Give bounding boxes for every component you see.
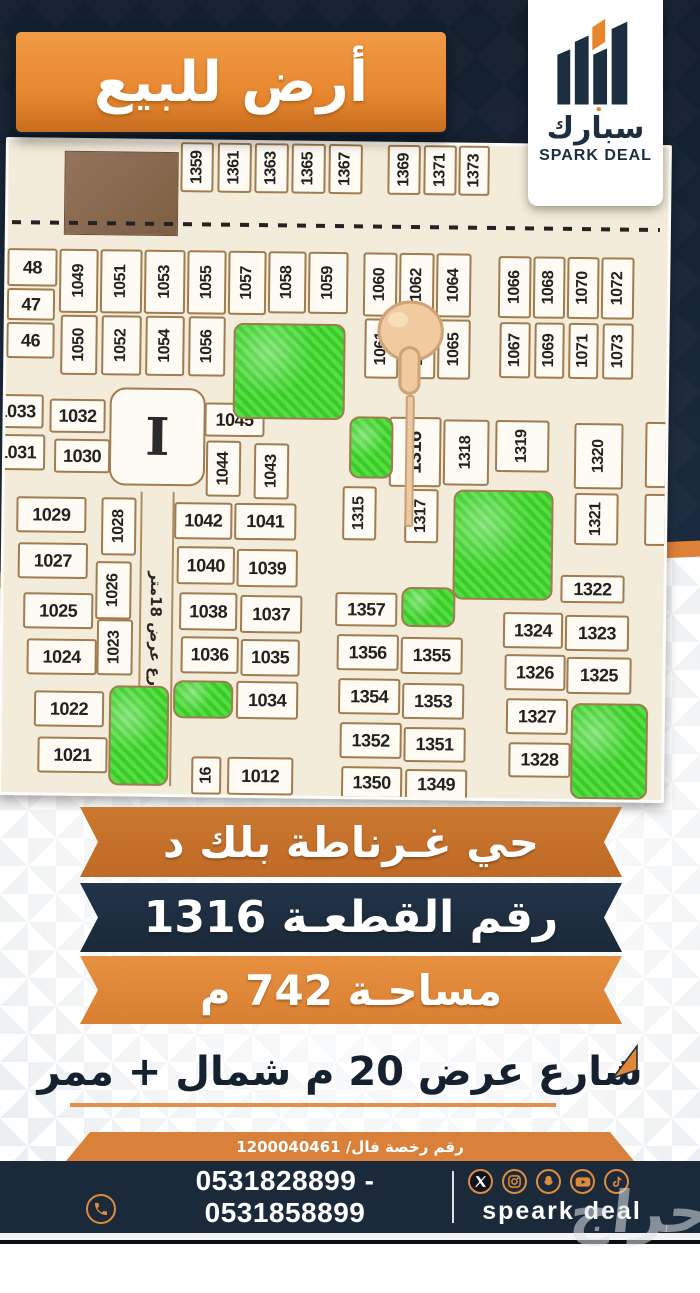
pointer-line-to-plot-1316 xyxy=(404,395,415,527)
plot-47: 47 xyxy=(7,288,55,321)
plot-1367: 1367 xyxy=(328,144,363,194)
landmark-plaza: I xyxy=(109,387,206,486)
plot-1034: 1034 xyxy=(236,681,298,720)
bottom-dark-strip xyxy=(0,1240,700,1244)
street-note-underline xyxy=(70,1103,556,1107)
plot-1365: 1365 xyxy=(291,143,326,193)
spark-deal-logo-card: سبارك SPARK DEAL xyxy=(528,0,663,206)
plot-1318: 1318 xyxy=(443,419,490,486)
plot-1036: 1036 xyxy=(180,636,238,674)
logo-arabic-name: سبارك xyxy=(547,114,645,144)
buildings-logo-icon xyxy=(550,14,642,114)
plot-1038: 1038 xyxy=(179,592,237,631)
license-label: رقم رخصة فال/ 1200040461 xyxy=(236,1138,464,1156)
green-area xyxy=(452,489,553,600)
plot-1327: 1327 xyxy=(506,698,568,735)
plot-1073: 1073 xyxy=(602,323,634,379)
plot-1052: 1052 xyxy=(101,315,142,375)
plot-1066: 1066 xyxy=(498,256,532,318)
plot-1323: 1323 xyxy=(565,615,629,652)
street-note: شارع عرض 20 م شمال + ممر xyxy=(20,1040,660,1104)
plot-1022: 1022 xyxy=(34,690,104,727)
plot-1025: 1025 xyxy=(23,592,93,629)
plot-1023: 1023 xyxy=(96,619,133,675)
plot-1037: 1037 xyxy=(240,595,302,634)
orange-corner-triangle-icon xyxy=(610,1042,640,1080)
plot-1033: 1033 xyxy=(0,394,44,429)
plot-1359: 1359 xyxy=(180,142,214,192)
plot-1039: 1039 xyxy=(237,549,298,588)
phone-line-1: 0531828899 - 0531858899 xyxy=(120,1165,450,1229)
area-ribbon: مساحـة 742 م xyxy=(80,956,622,1024)
plot-1316: 1316 xyxy=(389,417,442,488)
plot-unlabeled xyxy=(644,494,667,546)
contact-footer: 0531828899 - 0531858899 0531868899 - 053… xyxy=(0,1161,700,1233)
plot-1032: 1032 xyxy=(49,399,105,434)
youtube-icon xyxy=(570,1169,595,1194)
plot-1070: 1070 xyxy=(567,257,600,319)
plot-48: 48 xyxy=(7,248,57,287)
plot-1055: 1055 xyxy=(187,250,227,314)
green-area xyxy=(233,323,346,420)
plot-1350: 1350 xyxy=(341,766,402,799)
plot-1026: 1026 xyxy=(95,561,132,619)
district-ribbon: حي غـرناطة بلك د xyxy=(80,807,622,877)
district-label: حي غـرناطة بلك د xyxy=(163,818,539,867)
plot-1369: 1369 xyxy=(387,145,421,195)
plot-1071: 1071 xyxy=(568,323,599,379)
plot-1324: 1324 xyxy=(503,612,563,649)
plot-1069: 1069 xyxy=(534,322,565,378)
plot-1030: 1030 xyxy=(54,439,110,474)
plot-1322: 1322 xyxy=(560,575,624,604)
plot-1353: 1353 xyxy=(402,683,464,720)
plot-1068: 1068 xyxy=(533,256,566,318)
brand-handle: speark deal xyxy=(452,1197,672,1226)
plot-1356: 1356 xyxy=(337,634,399,671)
plot-1326: 1326 xyxy=(504,654,565,691)
area-label: مساحـة 742 م xyxy=(200,966,502,1015)
logo-english-name: SPARK DEAL xyxy=(539,147,652,165)
plot-1320: 1320 xyxy=(574,423,624,490)
plot-1352: 1352 xyxy=(339,722,401,759)
plot-map: I شارع عرض 18متر 13591361136313651367136… xyxy=(0,137,672,803)
plot-1059: 1059 xyxy=(308,252,349,314)
green-area xyxy=(570,703,648,800)
plot-1029: 1029 xyxy=(16,496,86,533)
snapchat-icon xyxy=(536,1169,561,1194)
license-strip: رقم رخصة فال/ 1200040461 xyxy=(66,1132,634,1161)
plot-1321: 1321 xyxy=(574,493,619,546)
green-area xyxy=(349,416,394,479)
x-icon xyxy=(468,1169,493,1194)
plot-1057: 1057 xyxy=(228,251,267,315)
street-note-label: شارع عرض 20 م شمال + ممر xyxy=(37,1049,642,1095)
plot-1363: 1363 xyxy=(254,143,289,193)
plot-1355: 1355 xyxy=(400,637,462,675)
for-sale-title: أرض للبيع xyxy=(94,50,368,115)
plot-1041: 1041 xyxy=(234,503,296,541)
plot-1040: 1040 xyxy=(177,546,235,585)
plot-1349: 1349 xyxy=(405,769,467,801)
green-area xyxy=(401,587,455,628)
social-icons-row xyxy=(468,1169,629,1194)
plot-46: 46 xyxy=(6,322,54,359)
plot-number-label: رقم القطعـة 1316 xyxy=(144,892,558,943)
bottom-white-strip xyxy=(0,1233,700,1240)
plot-1361: 1361 xyxy=(217,143,252,193)
plot-1027: 1027 xyxy=(18,542,88,579)
plot-1056: 1056 xyxy=(188,316,226,376)
instagram-icon xyxy=(502,1169,527,1194)
plot-1043: 1043 xyxy=(254,443,290,499)
plot-1024: 1024 xyxy=(26,638,96,675)
plot-1357: 1357 xyxy=(335,592,397,627)
plot-1042: 1042 xyxy=(174,502,232,540)
green-area xyxy=(173,680,233,719)
plot-unlabeled xyxy=(645,422,668,488)
plot-1351: 1351 xyxy=(403,727,465,763)
plot-1354: 1354 xyxy=(338,678,400,715)
plot-1044: 1044 xyxy=(206,440,242,496)
plot-1028: 1028 xyxy=(101,497,137,555)
for-sale-banner: أرض للبيع xyxy=(14,30,448,134)
plot-1021: 1021 xyxy=(37,736,107,773)
plot-1050: 1050 xyxy=(60,315,98,375)
plot-1373: 1373 xyxy=(458,146,490,196)
plot-1035: 1035 xyxy=(240,639,299,677)
plot-1054: 1054 xyxy=(145,316,185,376)
green-area xyxy=(108,685,169,786)
phone-icon xyxy=(86,1194,116,1224)
plot-1053: 1053 xyxy=(144,250,186,314)
plot-1031: 1031 xyxy=(0,434,45,471)
land-sale-flyer: { "top_banner": {"title": "أرض للبيع"}, … xyxy=(0,0,700,1244)
plot-1067: 1067 xyxy=(499,322,531,378)
plot-number-ribbon: رقم القطعـة 1316 xyxy=(80,883,622,952)
plot-1051: 1051 xyxy=(100,249,143,314)
hand-pointer-icon xyxy=(372,296,449,405)
phone-numbers: 0531828899 - 0531858899 0531868899 - 053… xyxy=(120,1165,450,1293)
plot-1371: 1371 xyxy=(423,145,457,195)
plot-1328: 1328 xyxy=(508,742,570,778)
plot-1325: 1325 xyxy=(566,657,631,695)
tiktok-icon xyxy=(604,1169,629,1194)
plot-1072: 1072 xyxy=(601,257,635,319)
plot-1012: 1012 xyxy=(227,757,293,796)
plot-1315: 1315 xyxy=(342,486,377,540)
plot-1319: 1319 xyxy=(495,420,550,473)
plot-1058: 1058 xyxy=(268,251,307,313)
plot-1049: 1049 xyxy=(59,249,99,313)
plot-16: 16 xyxy=(191,756,221,794)
landmark-icon: I xyxy=(145,406,170,467)
